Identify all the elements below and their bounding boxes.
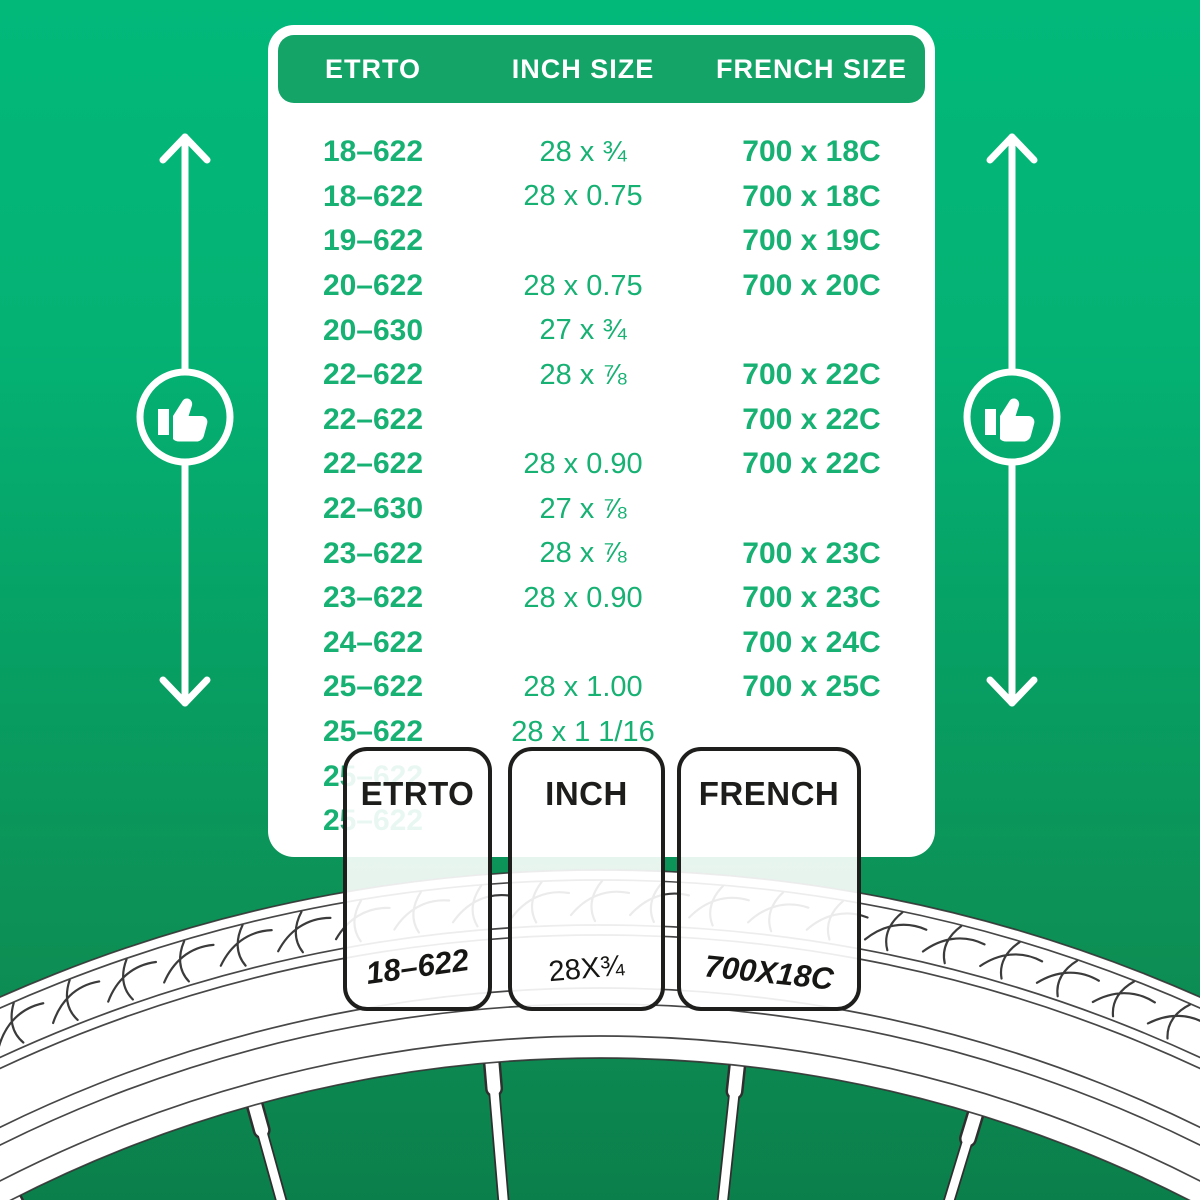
thumbs-up-icon xyxy=(158,399,207,442)
etrto-sidewall-value: 18–622 xyxy=(345,939,490,994)
right-size-range-arrow xyxy=(967,137,1057,703)
inch-label-title: INCH xyxy=(512,775,661,813)
french-label-title: FRENCH xyxy=(681,775,857,813)
left-size-range-arrow xyxy=(140,137,230,703)
thumbs-up-icon xyxy=(985,399,1034,442)
etrto-label-card: ETRTO 18–622 xyxy=(343,747,492,1011)
french-label-card: FRENCH 700X18C xyxy=(677,747,861,1011)
etrto-label-title: ETRTO xyxy=(347,775,488,813)
left-size-range-arrow xyxy=(967,137,1057,703)
inch-label-card: INCH 28X¾ xyxy=(508,747,665,1011)
inch-sidewall-value: 28X¾ xyxy=(511,947,662,993)
french-sidewall-value: 700X18C xyxy=(680,946,859,1000)
